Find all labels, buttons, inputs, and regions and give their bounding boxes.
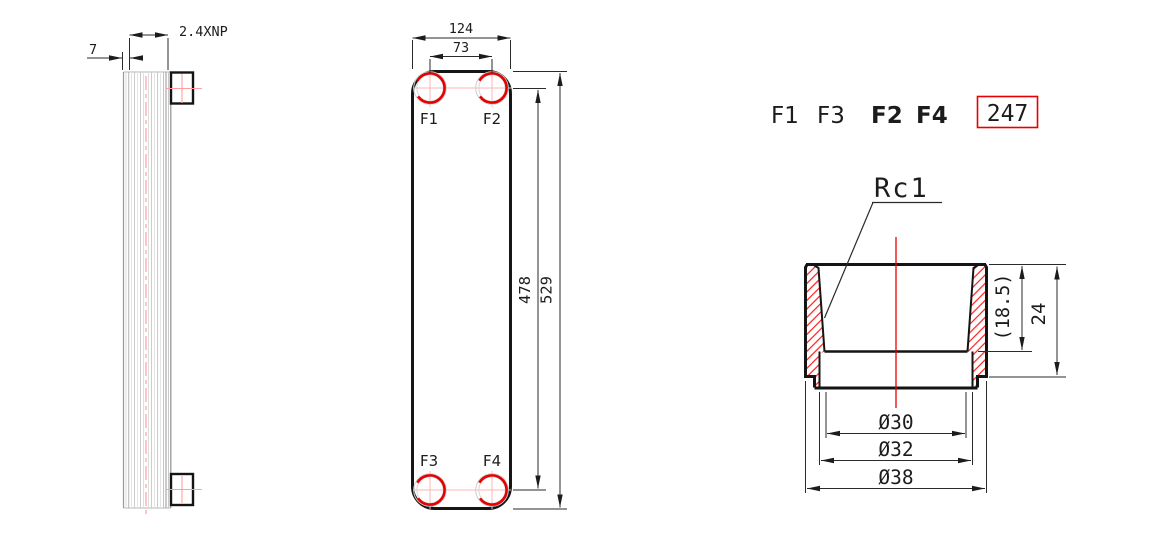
- dim-ports-label: 73: [453, 40, 469, 56]
- dim-d38-label: Ø38: [878, 466, 913, 489]
- side-view: 7 2.4XNP: [87, 24, 228, 514]
- legend-f1: F1: [771, 103, 799, 129]
- drawing-sheet: 7 2.4XNP: [0, 0, 1162, 537]
- legend-f3: F3: [817, 103, 845, 129]
- dim-plate-stack: [130, 35, 169, 70]
- dim-d32-label: Ø32: [878, 438, 913, 461]
- dim-height-24-label: 24: [1028, 303, 1050, 326]
- plate-stack-lines: [124, 72, 171, 508]
- plate-outline: [413, 72, 511, 509]
- port-label-f1: F1: [420, 110, 438, 128]
- section-view: Rc1 (18.5) 24 Ø30 Ø32: [806, 173, 1067, 493]
- legend-f4: F4: [916, 103, 948, 129]
- port-label-f4: F4: [483, 452, 501, 470]
- dim-thread-depth-label: (18.5): [993, 274, 1014, 341]
- dim-end-plate-label: 7: [89, 42, 97, 58]
- thread-label: Rc1: [874, 173, 929, 204]
- section-hatch-right: [968, 265, 987, 388]
- dim-width-label: 124: [449, 21, 473, 37]
- section-hatch-left: [806, 265, 825, 388]
- thread-leader: [825, 203, 943, 319]
- port-legend: F1 F3 F2 F4 247: [771, 97, 1038, 130]
- port-label-f3: F3: [420, 452, 438, 470]
- dim-478-label: 478: [516, 276, 534, 304]
- front-view: F1 F2 F3 F4 124 73 478 529: [413, 21, 568, 509]
- port-label-f2: F2: [483, 110, 501, 128]
- drawing-svg: 7 2.4XNP: [0, 0, 1162, 537]
- legend-f2: F2: [871, 103, 903, 129]
- dim-thread-depth: [978, 265, 1066, 352]
- dim-d30-label: Ø30: [878, 411, 913, 434]
- dim-529-label: 529: [538, 276, 556, 304]
- dim-plate-stack-label: 2.4XNP: [179, 24, 228, 40]
- stamp-value: 247: [987, 101, 1029, 127]
